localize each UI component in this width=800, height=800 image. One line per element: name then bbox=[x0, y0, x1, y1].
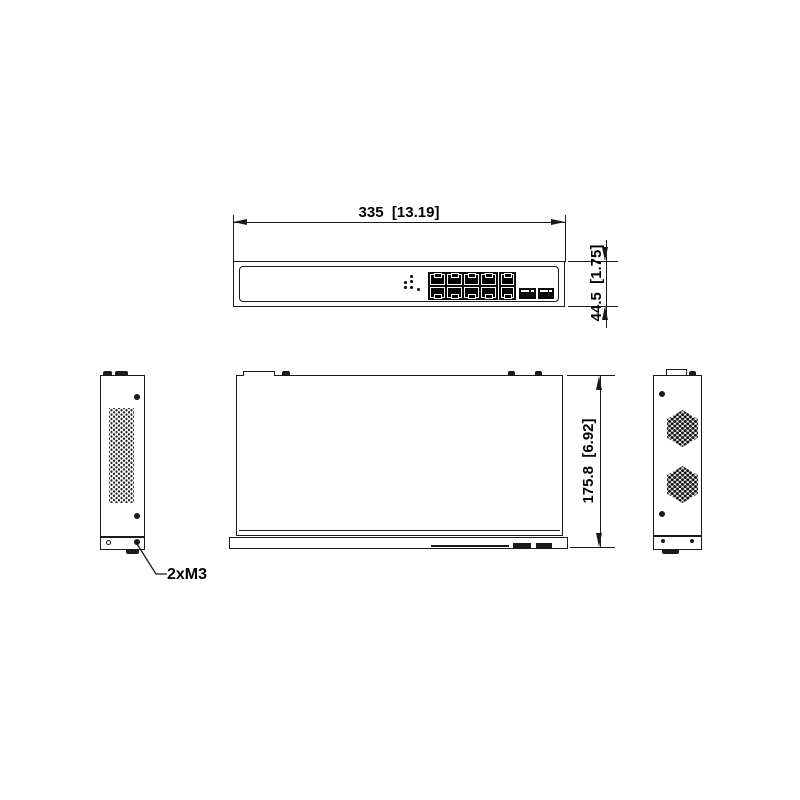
strip-hole bbox=[661, 539, 665, 543]
right-side-view bbox=[0, 0, 800, 800]
strip-hole bbox=[690, 539, 694, 543]
screw-hole bbox=[659, 391, 665, 397]
dimension-drawing: 335 [13.19] bbox=[0, 0, 800, 800]
screw-hole bbox=[659, 511, 665, 517]
right-side-front-strip bbox=[653, 536, 702, 550]
foot-tab bbox=[662, 550, 679, 554]
rear-connector-recess bbox=[666, 369, 687, 375]
rear-tab bbox=[689, 371, 696, 375]
